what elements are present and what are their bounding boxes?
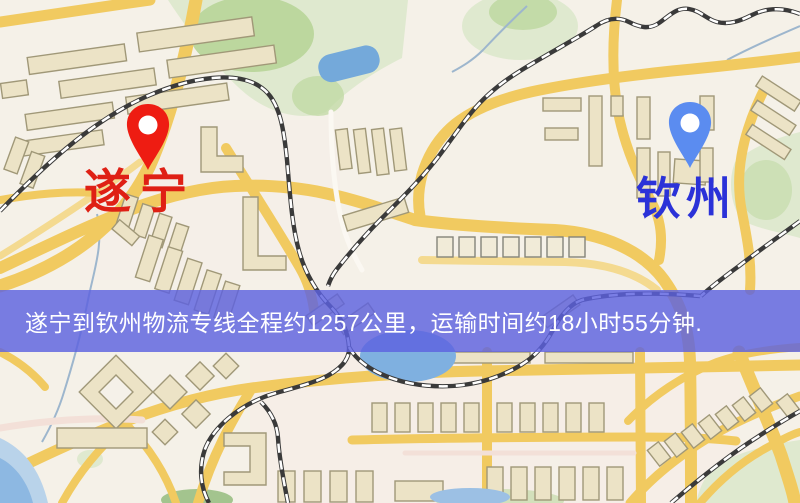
pin-body	[669, 102, 711, 168]
pin-body	[127, 104, 169, 170]
map-pin-icon	[121, 101, 175, 171]
map-canvas	[0, 0, 800, 503]
destination-marker[interactable]	[663, 99, 717, 169]
route-info-banner: 遂宁到钦州物流专线全程约1257公里，运输时间约18小时55分钟.	[0, 290, 800, 352]
origin-marker[interactable]	[121, 101, 175, 171]
pin-hole	[139, 116, 158, 135]
destination-city-label: 钦州	[636, 177, 736, 222]
map-view: 遂宁 钦州 遂宁到钦州物流专线全程约1257公里，运输时间约18小时55分钟.	[0, 0, 800, 503]
map-pin-icon	[663, 99, 717, 169]
pin-hole	[681, 114, 700, 133]
route-info-text: 遂宁到钦州物流专线全程约1257公里，运输时间约18小时55分钟.	[25, 304, 702, 338]
square-row	[437, 237, 585, 257]
origin-city-label: 遂宁	[84, 170, 196, 217]
